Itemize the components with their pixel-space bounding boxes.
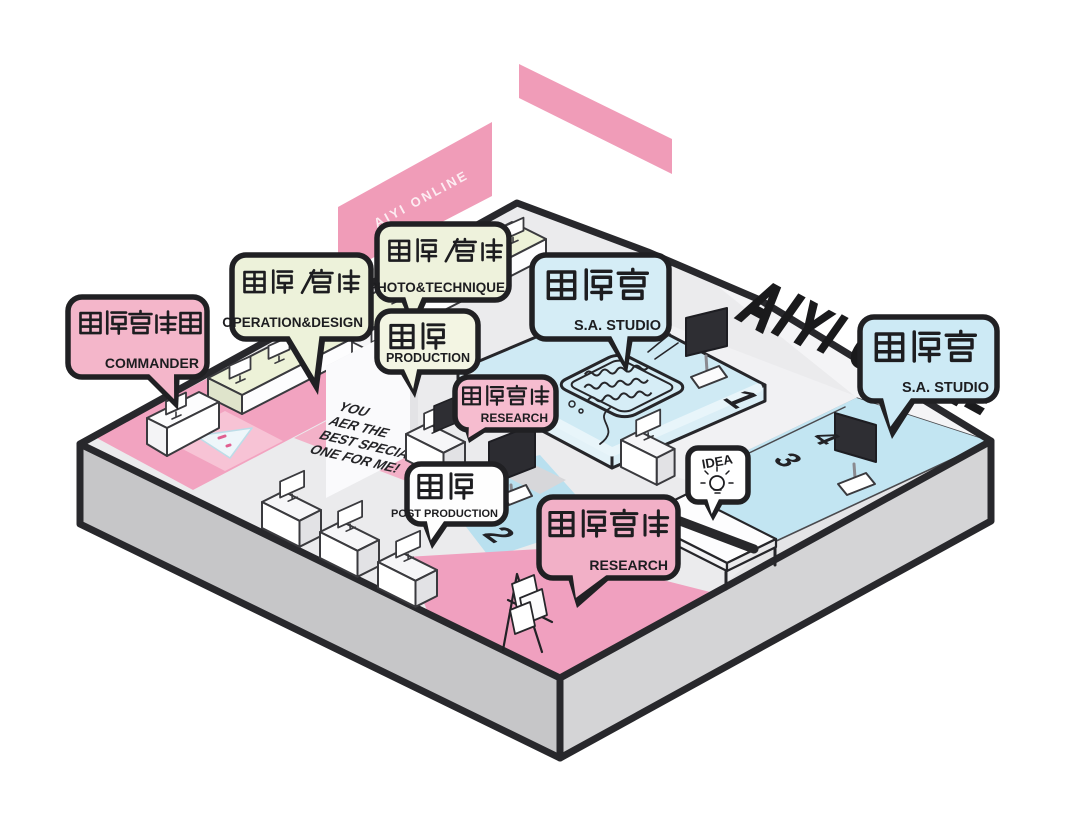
svg-text:RESEARCH: RESEARCH [589,557,668,573]
svg-text:S.A. STUDIO: S.A. STUDIO [902,380,989,396]
svg-text:RESEARCH: RESEARCH [481,411,548,425]
svg-text:OPERATION&DESIGN: OPERATION&DESIGN [222,315,363,330]
svg-text:COMMANDER: COMMANDER [105,355,199,371]
svg-text:POST PRODUCTION: POST PRODUCTION [391,508,498,520]
svg-text:PRODUCTION: PRODUCTION [386,351,470,365]
svg-text:S.A. STUDIO: S.A. STUDIO [574,318,661,334]
svg-text:PHOTO&TECHNIQUE: PHOTO&TECHNIQUE [368,280,505,295]
